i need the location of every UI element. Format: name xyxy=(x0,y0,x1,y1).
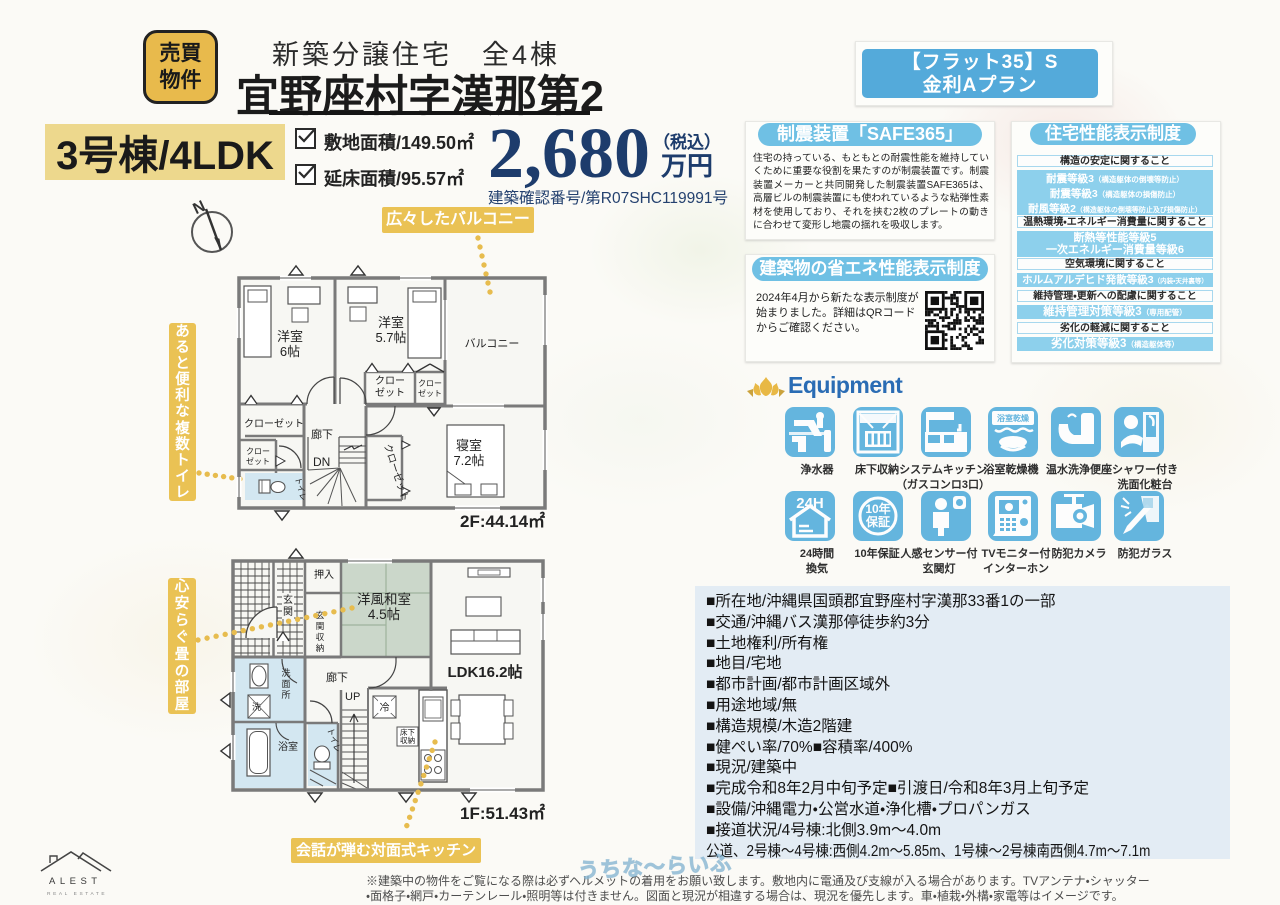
svg-text:6帖: 6帖 xyxy=(280,344,300,359)
svg-text:洋室: 洋室 xyxy=(378,315,404,330)
svg-text:ALEST: ALEST xyxy=(49,876,102,887)
svg-text:DN: DN xyxy=(313,455,330,469)
svg-text:寝室: 寝室 xyxy=(456,438,482,453)
svg-text:関: 関 xyxy=(283,606,293,618)
svg-text:ゼット: ゼット xyxy=(246,456,270,466)
svg-text:5.7帖: 5.7帖 xyxy=(375,330,406,345)
svg-text:LDK16.2帖: LDK16.2帖 xyxy=(447,663,522,681)
svg-text:10年: 10年 xyxy=(865,501,890,516)
svg-text:洗: 洗 xyxy=(281,667,290,678)
svg-text:所: 所 xyxy=(281,689,290,700)
svg-text:7.2帖: 7.2帖 xyxy=(453,453,484,468)
svg-text:N: N xyxy=(191,198,209,218)
svg-text:4.5帖: 4.5帖 xyxy=(368,607,400,622)
svg-text:保証: 保証 xyxy=(865,514,890,529)
svg-text:納: 納 xyxy=(316,643,325,653)
svg-text:ゼット: ゼット xyxy=(375,387,405,399)
svg-text:冷: 冷 xyxy=(380,702,390,714)
svg-text:収納: 収納 xyxy=(400,735,415,745)
svg-text:UP: UP xyxy=(345,691,360,703)
svg-text:クロー: クロー xyxy=(246,447,270,456)
svg-text:関: 関 xyxy=(316,621,325,631)
svg-text:REAL ESTATE: REAL ESTATE xyxy=(47,891,107,897)
svg-text:クロー: クロー xyxy=(375,375,405,387)
svg-text:玄: 玄 xyxy=(283,593,293,606)
svg-text:面: 面 xyxy=(281,679,290,689)
svg-text:クローゼット: クローゼット xyxy=(244,418,304,430)
svg-text:ゼット: ゼット xyxy=(418,388,442,398)
svg-text:廊下: 廊下 xyxy=(326,670,348,684)
svg-text:バルコニー: バルコニー xyxy=(465,337,520,350)
svg-text:洗: 洗 xyxy=(252,701,261,712)
svg-text:押入: 押入 xyxy=(314,568,334,581)
svg-text:廊下: 廊下 xyxy=(311,427,333,441)
svg-text:収: 収 xyxy=(316,632,325,642)
svg-text:洋室: 洋室 xyxy=(277,329,303,344)
svg-text:クロー: クロー xyxy=(418,379,442,388)
svg-text:浴室: 浴室 xyxy=(278,740,298,753)
svg-text:洋風和室: 洋風和室 xyxy=(357,592,411,607)
svg-text:浴室乾燥: 浴室乾燥 xyxy=(997,413,1030,423)
svg-text:24H: 24H xyxy=(796,495,824,512)
